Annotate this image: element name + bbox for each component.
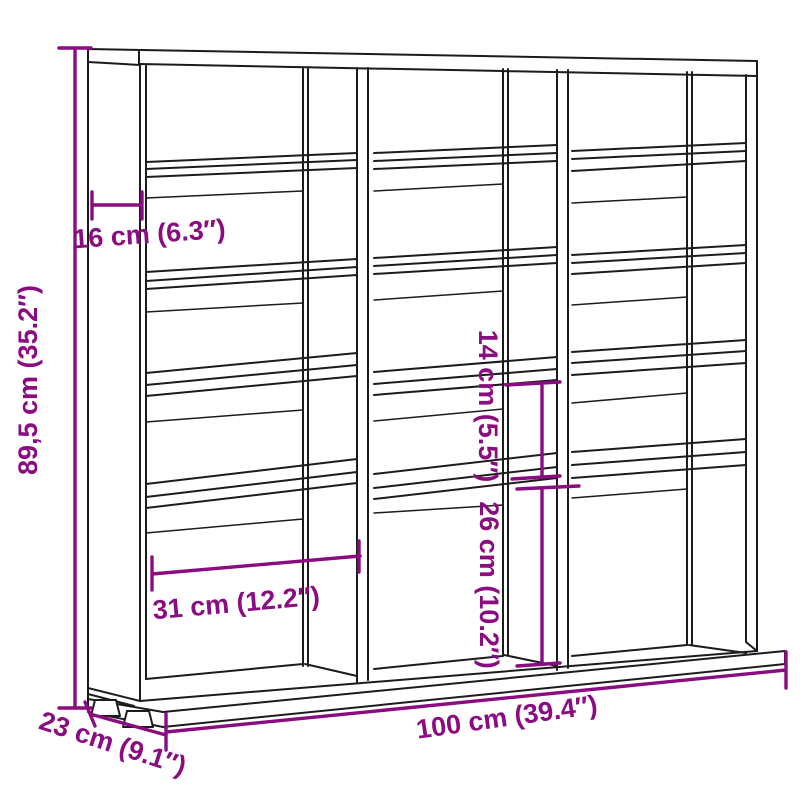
shelves-section-1	[146, 153, 357, 508]
diagram-canvas: 89,5 cm (35.2″) 16 cm (6.3″) 14 cm (5.5″…	[0, 0, 800, 800]
dimension-shelf-gap-small-label: 14 cm (5.5″)	[473, 330, 503, 483]
shelves-section-2	[374, 145, 557, 499]
shelves-section-3	[572, 143, 746, 478]
dimension-top-depth-line	[92, 192, 142, 219]
dimension-compartment-width-label: 31 cm (12.2″)	[151, 581, 321, 625]
dimension-top-depth: 16 cm (6.3″)	[72, 192, 226, 254]
dimension-top-depth-label: 16 cm (6.3″)	[72, 214, 226, 255]
dimension-height: 89,5 cm (35.2″)	[13, 48, 91, 708]
dimension-shelf-gap-large-line	[517, 486, 579, 666]
dimension-shelf-gap-large-label: 26 cm (10.2″)	[474, 501, 504, 669]
dimension-compartment-width-line	[152, 541, 360, 590]
base-foot-left	[91, 700, 120, 716]
shelf-dimension-diagram: 89,5 cm (35.2″) 16 cm (6.3″) 14 cm (5.5″…	[0, 0, 800, 800]
dimension-shelf-gap-small: 14 cm (5.5″)	[473, 330, 560, 483]
dimension-compartment-width: 31 cm (12.2″)	[151, 541, 360, 625]
dimension-height-line	[59, 48, 91, 708]
dimension-height-label: 89,5 cm (35.2″)	[13, 285, 43, 475]
cabinet-outline	[88, 49, 785, 727]
dimension-shelf-gap-large: 26 cm (10.2″)	[474, 486, 579, 669]
dimension-shelf-gap-small-line	[506, 382, 560, 479]
